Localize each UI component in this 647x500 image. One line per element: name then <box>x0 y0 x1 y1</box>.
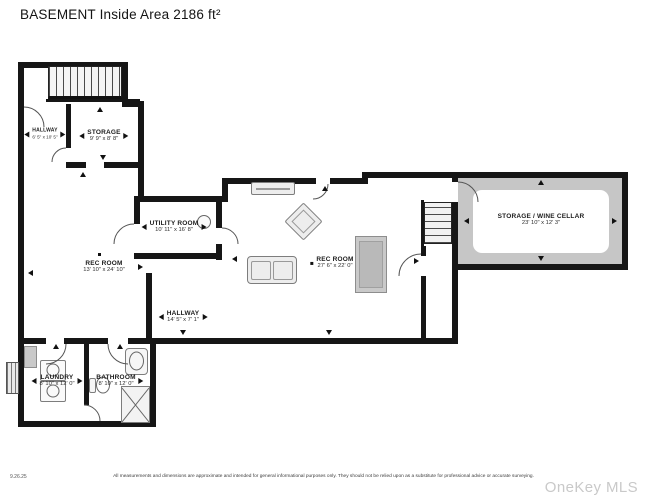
wall <box>150 338 458 344</box>
room-dims: 13' 10" x 24' 10" <box>83 267 124 274</box>
marker-dot-icon <box>310 262 313 265</box>
arrow-down-icon <box>326 330 332 335</box>
wall <box>146 273 152 338</box>
media-console-detail <box>256 188 290 190</box>
room-name: UTILITY ROOM <box>150 220 199 227</box>
arrow-left-icon <box>232 256 237 262</box>
arrow-right-icon <box>78 378 83 384</box>
door-arc <box>84 405 100 421</box>
wall <box>84 343 89 405</box>
arrow-up-icon <box>53 344 59 349</box>
arrow-right-icon <box>139 378 144 384</box>
arrow-down-icon <box>100 155 106 160</box>
arrow-right-icon <box>61 131 66 137</box>
arrow-left-icon <box>31 378 36 384</box>
laundry-counter-icon <box>24 346 37 368</box>
arrow-up-icon <box>538 180 544 185</box>
arrow-left-icon <box>464 218 469 224</box>
door-arc <box>24 107 44 127</box>
wall <box>66 162 86 168</box>
stair-landing-edge <box>46 99 140 102</box>
sofa-cushion <box>273 261 293 280</box>
room-dims: 14' 5" x 7' 1" <box>167 317 200 324</box>
door-arc <box>222 228 238 244</box>
room-label-storage-wine-cellar: STORAGE / WINE CELLAR23' 10" x 12' 3" <box>498 213 585 227</box>
room-label-utility-room: UTILITY ROOM10' 11" x 16' 8" <box>142 220 207 234</box>
room-dims: 10' 11" x 16' 8" <box>150 227 199 234</box>
wall <box>18 338 46 344</box>
arrow-right-icon <box>138 264 143 270</box>
marker-dot-icon <box>98 253 101 256</box>
arrow-right-icon <box>414 258 419 264</box>
wall <box>458 264 628 270</box>
door-arc <box>114 224 134 244</box>
shower-icon <box>121 386 150 423</box>
floorplan-page: BASEMENT Inside Area 2186 ft² <box>0 0 647 500</box>
pool-table-felt <box>359 241 383 288</box>
arrow-up-icon <box>80 172 86 177</box>
room-name: STORAGE <box>87 129 120 136</box>
wall <box>134 196 140 224</box>
room-label-laundry: LAUNDRY8' 10" x 12' 0" <box>31 374 82 388</box>
wall <box>66 104 71 148</box>
arrow-up-icon <box>322 186 328 191</box>
room-name: REC ROOM <box>316 256 353 263</box>
wall <box>622 172 628 270</box>
sofa-cushion <box>251 261 271 280</box>
room-label-bathroom: BATHROOM8' 10" x 12' 0" <box>96 374 143 388</box>
room-label-storage: STORAGE9' 9" x 8' 8" <box>79 129 128 143</box>
arrow-left-icon <box>28 270 33 276</box>
room-name: BATHROOM <box>96 374 135 381</box>
arrow-up-icon <box>117 344 123 349</box>
arrow-right-icon <box>201 224 206 230</box>
room-label-rec-room-main: REC ROOM27' 6" x 22' 0" <box>310 256 353 270</box>
page-title: BASEMENT Inside Area 2186 ft² <box>20 7 221 22</box>
window-well-icon <box>6 362 19 394</box>
room-dims: 8' 10" x 12' 0" <box>96 381 135 388</box>
room-label-hallway-lower: HALLWAY14' 5" x 7' 1" <box>159 310 208 324</box>
arrow-down-icon <box>180 330 186 335</box>
arrow-left-icon <box>24 131 29 137</box>
arrow-left-icon <box>79 133 84 139</box>
wall <box>138 101 144 168</box>
room-dims: 8' 10" x 12' 0" <box>39 381 74 388</box>
room-dims: 27' 6" x 22' 0" <box>316 263 353 270</box>
sink-icon <box>125 348 148 375</box>
room-dims: 6' 5" x 10' 5" <box>32 134 57 139</box>
wall <box>421 276 426 338</box>
stairs-icon <box>424 202 452 244</box>
arrow-right-icon <box>612 218 617 224</box>
watermark: OneKey MLS <box>545 479 638 496</box>
arrow-left-icon <box>159 314 164 320</box>
toilet-icon <box>89 378 96 393</box>
arrow-left-icon <box>142 224 147 230</box>
wall <box>150 343 156 427</box>
room-name: HALLWAY <box>167 310 200 317</box>
arrow-up-icon <box>97 107 103 112</box>
room-name: HALLWAY <box>32 128 57 134</box>
stairs-icon <box>48 66 122 99</box>
arrow-right-icon <box>202 314 207 320</box>
wall <box>421 246 426 256</box>
room-name: STORAGE / WINE CELLAR <box>498 213 585 220</box>
room-name: LAUNDRY <box>39 374 74 381</box>
arrow-down-icon <box>538 256 544 261</box>
wall <box>134 196 222 202</box>
door-arc <box>52 148 66 162</box>
room-label-rec-room-left: REC ROOM13' 10" x 24' 10" <box>83 260 124 274</box>
room-name: REC ROOM <box>83 260 124 267</box>
room-dims: 23' 10" x 12' 3" <box>498 220 585 227</box>
room-dims: 9' 9" x 8' 8" <box>87 136 120 143</box>
wall <box>134 253 222 259</box>
room-label-hallway-upper: HALLWAY6' 5" x 10' 5" <box>24 128 65 139</box>
arrow-right-icon <box>124 133 129 139</box>
